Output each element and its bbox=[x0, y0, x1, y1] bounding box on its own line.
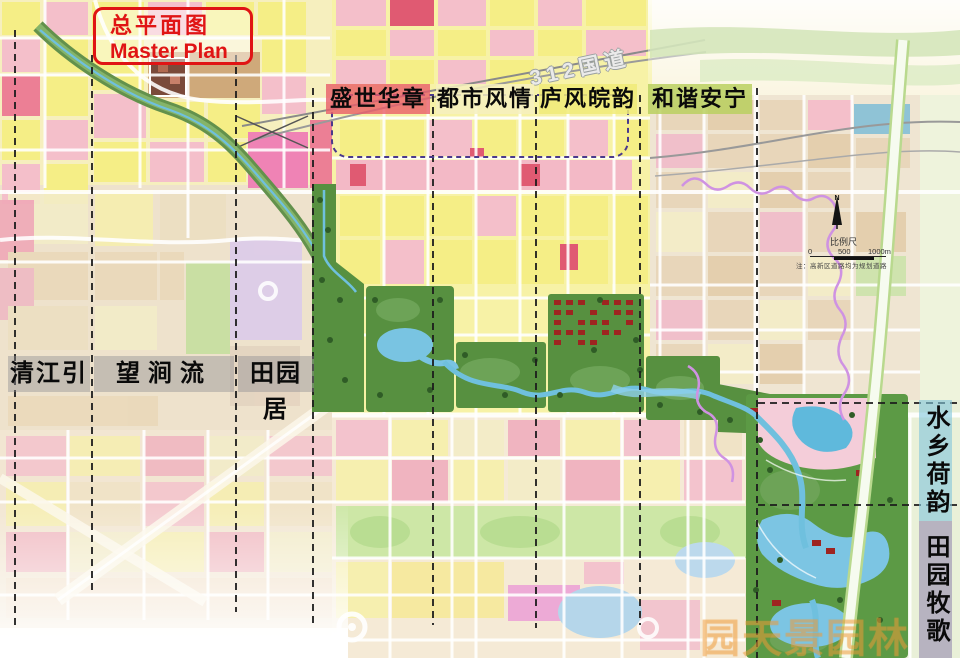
scale-tick-500: 500 bbox=[838, 247, 851, 256]
map-note: 注：高新区道路均为规划道路 bbox=[796, 263, 912, 271]
zone-label-wangjianliu: 望涧流 bbox=[94, 356, 234, 392]
page-title-en: Master Plan bbox=[110, 39, 250, 64]
scale-tick-1000: 1000m bbox=[868, 247, 891, 256]
zone-label-lufengwanyun: 庐风皖韵 bbox=[539, 84, 637, 114]
scale-title: 比例尺 bbox=[830, 237, 912, 247]
zone-label-shuixiangheyun: 水乡荷韵 bbox=[919, 400, 952, 521]
zone-label-tianyuanju: 田园居 bbox=[238, 356, 314, 392]
zone-label-qingjiangyin: 清江引 bbox=[8, 356, 90, 392]
bottom-left-fade-2 bbox=[0, 628, 348, 658]
north-arrow: N bbox=[826, 195, 848, 202]
zone-label-dushifengqing: 都市风情 bbox=[436, 84, 534, 114]
zone-label-shengshihuazhang: 盛世华章 bbox=[326, 84, 430, 114]
north-arrow-icon bbox=[826, 195, 848, 229]
scale-bar: 比例尺 0 500 1000m 注：高新区道路均为规划道路 bbox=[796, 237, 912, 271]
scale-tick-0: 0 bbox=[808, 247, 812, 256]
top-right-fade-zone bbox=[648, 0, 960, 95]
zone-label-tianyuanmuge: 田园牧歌 bbox=[919, 521, 952, 658]
master-plan-page: 园天景园林 c918.com.cn 总平面图 Master Plan 312国道… bbox=[0, 0, 960, 658]
city-blocks-bottom-middle bbox=[336, 420, 746, 650]
title-box: 总平面图 Master Plan bbox=[93, 7, 253, 65]
scale-ticks: 0 500 1000m bbox=[796, 247, 912, 256]
page-title: 总平面图 bbox=[110, 13, 250, 39]
zone-label-hexieanning: 和谐安宁 bbox=[648, 84, 752, 114]
scale-bar-line bbox=[810, 256, 886, 261]
